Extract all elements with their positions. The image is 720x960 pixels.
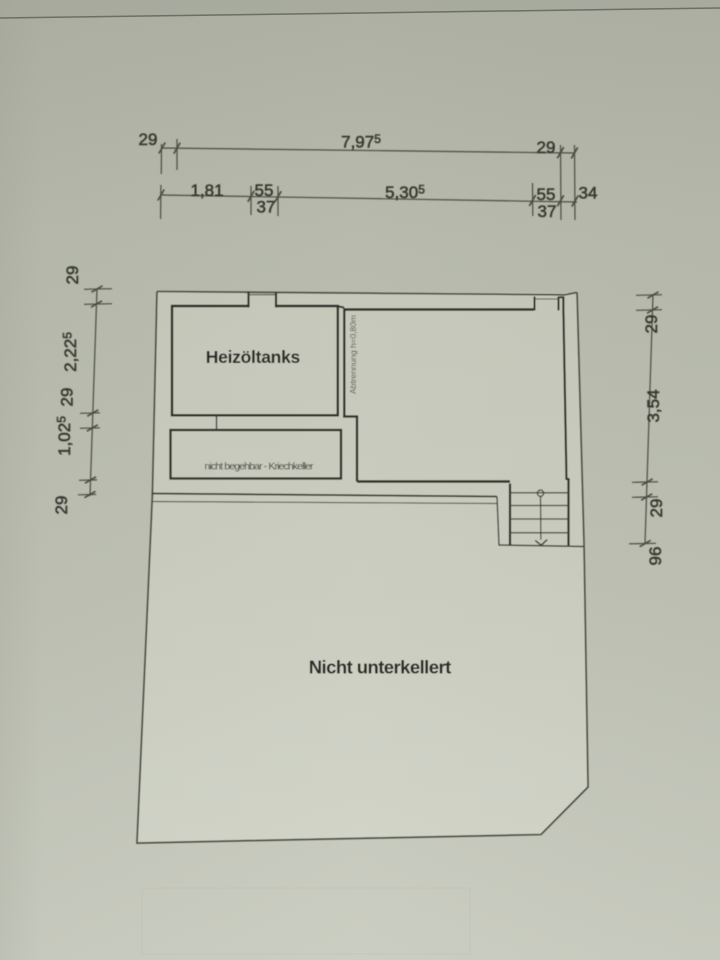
svg-text:Abtrennung h=0,80m: Abtrennung h=0,80m	[348, 315, 358, 394]
svg-text:3,54: 3,54	[644, 389, 663, 422]
svg-text:29: 29	[537, 138, 556, 157]
svg-text:29: 29	[58, 388, 77, 407]
svg-text:96: 96	[646, 547, 665, 566]
svg-text:29: 29	[139, 130, 158, 149]
svg-text:37: 37	[257, 198, 276, 217]
svg-text:37: 37	[538, 202, 557, 221]
svg-text:1,81: 1,81	[190, 181, 223, 200]
svg-text:nicht begehbar - Kriechkeller: nicht begehbar - Kriechkeller	[205, 461, 315, 473]
svg-text:Heizöltanks: Heizöltanks	[206, 347, 301, 367]
svg-text:29: 29	[647, 499, 666, 518]
svg-text:34: 34	[579, 184, 598, 203]
svg-text:29: 29	[642, 315, 661, 334]
svg-text:29: 29	[63, 266, 82, 285]
svg-text:29: 29	[52, 496, 71, 515]
svg-text:Nicht unterkellert: Nicht unterkellert	[309, 657, 452, 678]
